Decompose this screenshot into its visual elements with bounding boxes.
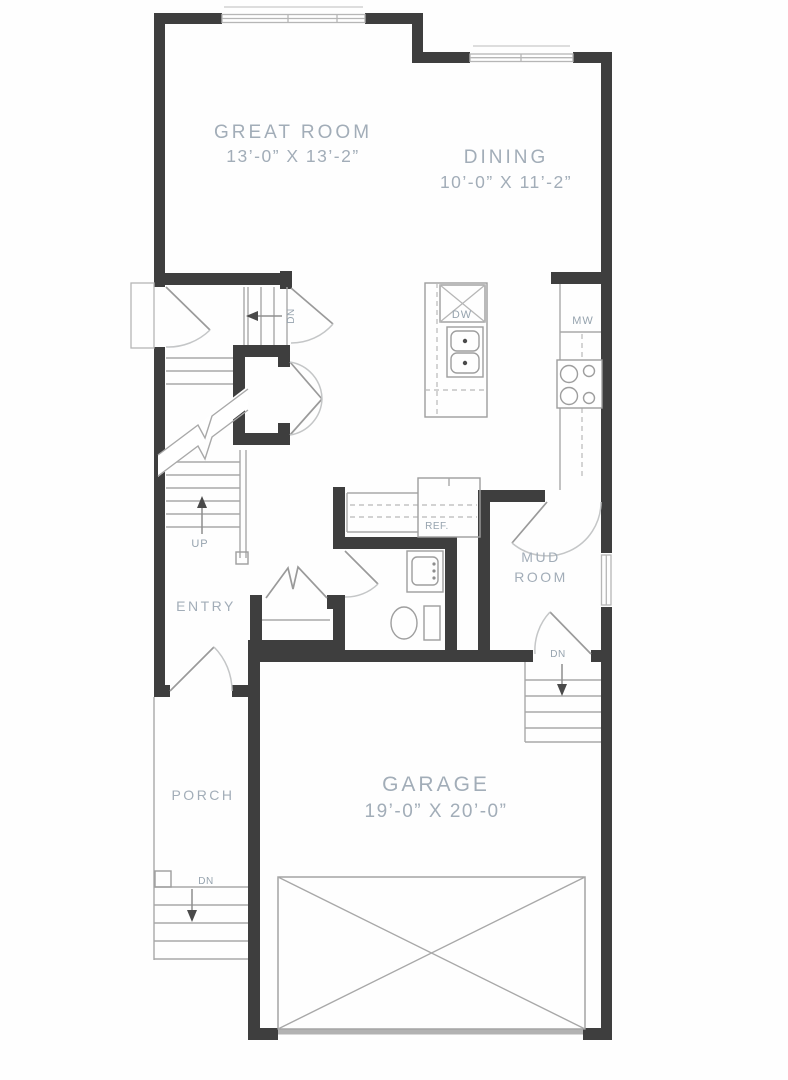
porch-steps (154, 887, 248, 959)
kitchen: DW MW (347, 283, 602, 537)
wall (601, 607, 612, 1040)
great-room-dims: 13’-0” X 13’-2” (226, 146, 359, 166)
wall (278, 423, 290, 445)
porch-post (155, 871, 171, 887)
basement-stairs-door (291, 288, 333, 343)
great-room-window (222, 15, 365, 23)
up-arrowhead (197, 496, 207, 508)
entry-closet-bifold-doors (266, 567, 327, 598)
dishwasher-label: DW (452, 309, 472, 321)
wall (601, 52, 612, 553)
wall (154, 685, 170, 697)
wall (327, 595, 342, 609)
dn-label: DN (286, 308, 297, 323)
doors (131, 283, 601, 691)
wall (278, 345, 290, 367)
up-label: UP (191, 538, 208, 550)
wall (333, 537, 457, 549)
porch-label: PORCH (171, 787, 234, 803)
wall (445, 537, 457, 650)
side-door (131, 283, 210, 348)
refrigerator: REF. (418, 478, 480, 537)
kitchen-back-counter: REF. (347, 478, 480, 537)
cooktop (557, 360, 602, 408)
wall (551, 272, 612, 284)
garage-label: GARAGE (382, 773, 490, 796)
dn-arrowhead (187, 910, 197, 922)
floor-plan-drawing: UP DN DW MW (0, 0, 788, 1080)
basement-stairs: DN (244, 287, 297, 345)
floor-plan: UP DN DW MW (0, 0, 788, 1080)
garage (278, 877, 585, 1032)
garage-door-cross (278, 877, 585, 1029)
dn-label: DN (550, 649, 565, 660)
microwave-label: MW (572, 315, 594, 327)
dn-label: DN (198, 876, 213, 887)
wall (248, 1028, 278, 1040)
stair-railing (240, 450, 246, 558)
front-entry-door (170, 647, 232, 691)
wall (248, 650, 260, 1040)
powder-room (391, 551, 443, 640)
toilet (391, 606, 440, 640)
mud-to-garage-door (535, 612, 591, 654)
mud-room-label-line1: MUD (521, 549, 560, 565)
garage-dims: 19’-0” X 20’-0” (365, 801, 508, 822)
mud-room-label-line2: ROOM (514, 569, 568, 585)
wall (232, 685, 260, 697)
wall (478, 490, 545, 502)
dining-window (470, 54, 573, 62)
kitchen-island: DW (425, 283, 487, 417)
dining-dims: 10’-0” X 11’-2” (440, 172, 572, 192)
room-labels: GREAT ROOM 13’-0” X 13’-2” DINING 10’-0”… (171, 122, 572, 822)
wall (280, 271, 292, 289)
vanity-sink (407, 551, 443, 592)
wall (248, 650, 533, 662)
kitchen-sink (447, 327, 483, 377)
wall (154, 347, 165, 697)
wall (154, 13, 165, 287)
entry-label: ENTRY (176, 598, 236, 614)
great-room-label: GREAT ROOM (214, 122, 372, 143)
windows (222, 7, 611, 605)
dn-arrowhead (557, 684, 567, 696)
powder-room-door (345, 551, 378, 597)
wall (412, 52, 470, 63)
wall (583, 1028, 612, 1040)
side-stoop (131, 283, 154, 348)
wall (591, 650, 612, 662)
refrigerator-label: REF. (425, 521, 449, 532)
dishwasher: DW (440, 285, 485, 322)
stair-treads (525, 662, 601, 742)
porch: DN (154, 697, 248, 960)
hall-closet-double-doors (290, 362, 322, 435)
wall (250, 595, 262, 645)
kitchen-counter: MW (557, 284, 602, 490)
mud-room-window (602, 555, 612, 605)
dining-label: DINING (464, 147, 549, 168)
mud-room-door (512, 502, 601, 556)
wall (154, 273, 282, 285)
mud-garage-stairs: DN (525, 649, 601, 742)
